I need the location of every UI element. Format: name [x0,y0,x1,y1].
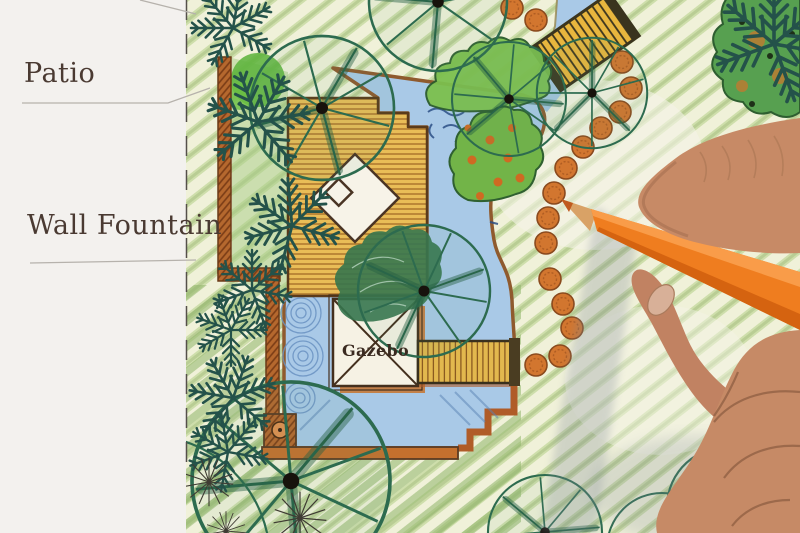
label-gazebo: Gazebo [333,341,418,360]
landscape-plan-drawing [0,0,800,533]
label-patio: Patio [24,58,95,89]
photo-hand-over-landscape-plan: Patio Wall Fountain Gazebo [0,0,800,533]
label-wall-fountain: Wall Fountain [27,210,222,241]
dock-end-cap [509,338,520,386]
